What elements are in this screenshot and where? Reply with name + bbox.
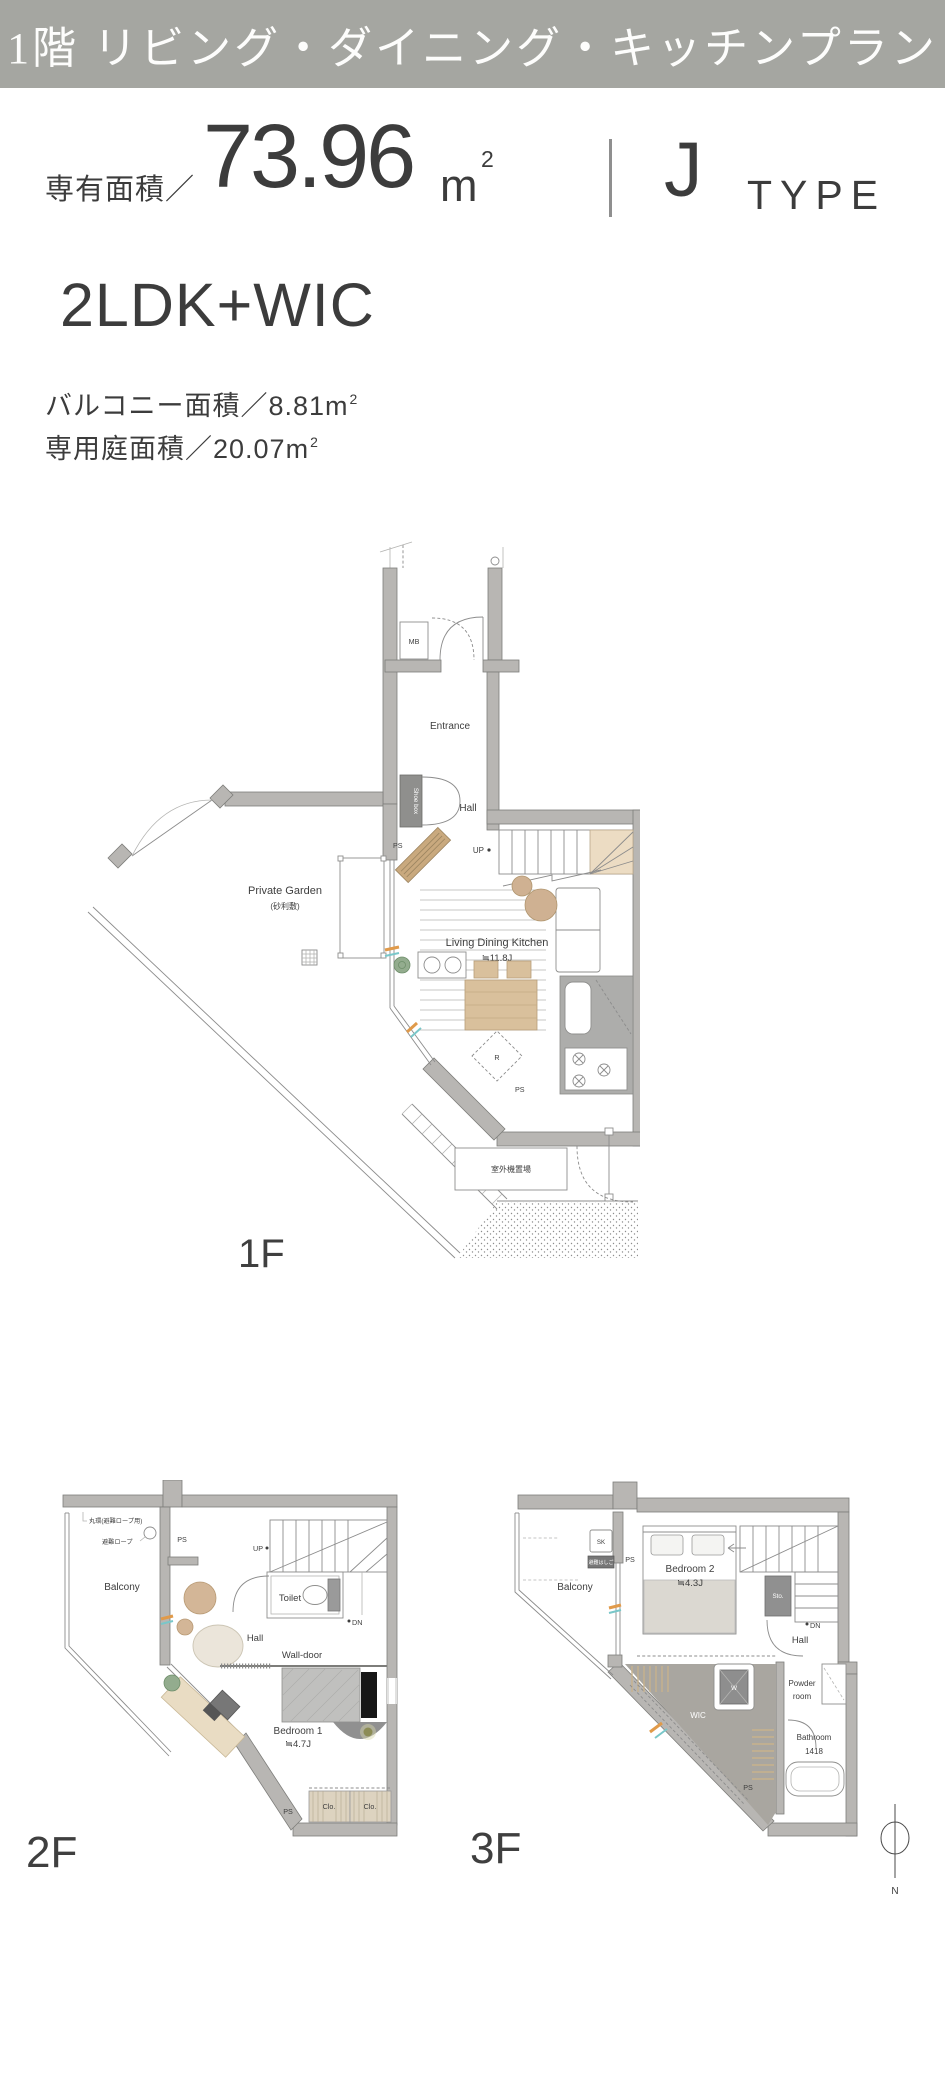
room-label-entrance: Entrance xyxy=(430,721,470,732)
room-size-bathroom: 1418 xyxy=(805,1747,823,1756)
room-label-balcony-3f: Balcony xyxy=(557,1582,593,1593)
exclusive-area-unit-sup: 2 xyxy=(481,146,494,173)
room-label-powder-1: Powder xyxy=(788,1679,815,1688)
room-size-bedroom2: ≒4.3J xyxy=(677,1578,703,1589)
ps-label-3f-upper: PS xyxy=(625,1555,635,1564)
slop-sink-label: SK xyxy=(597,1539,606,1546)
shoe-box-label: Shoe box xyxy=(412,788,419,815)
private-garden-note: (砂利敷) xyxy=(270,901,300,911)
ps-label-1f-lower: PS xyxy=(515,1085,525,1094)
room-label-powder-2: room xyxy=(793,1692,812,1701)
balcony-area-value: 8.81 xyxy=(268,391,325,421)
room-label-ldk: Living Dining Kitchen xyxy=(446,937,549,949)
compass-north-label: N xyxy=(891,1886,898,1897)
room-label-bedroom1: Bedroom 1 xyxy=(274,1726,323,1737)
mailbox-label: MB xyxy=(409,637,420,646)
balcony-area-label: バルコニー面積／ xyxy=(45,391,268,421)
floor-label-3f: 3F xyxy=(470,1824,521,1874)
ps-label-2f-upper: PS xyxy=(177,1535,187,1544)
storage-label: Sto. xyxy=(772,1593,783,1600)
stairs-up-label-2f: UP xyxy=(253,1544,263,1553)
room-label-hall-2f: Hall xyxy=(247,1633,263,1644)
room-label-toilet: Toilet xyxy=(279,1593,302,1604)
balcony-area-unit: m xyxy=(325,391,349,421)
room-label-private-garden: Private Garden xyxy=(248,885,322,897)
type-letter: J xyxy=(664,132,703,209)
washer-label: W xyxy=(731,1685,737,1692)
room-label-hall-3f: Hall xyxy=(792,1635,808,1646)
escape-ring-label: 丸環(避難ロープ用) xyxy=(89,1517,142,1525)
stairs-up-label-1f: UP xyxy=(473,846,484,855)
escape-ladder-label: 避難はしご xyxy=(588,1559,613,1566)
ps-label-2f-lower: PS xyxy=(283,1807,293,1816)
room-label-hall-1f: Hall xyxy=(459,803,476,814)
ps-label-3f-lower: PS xyxy=(743,1783,753,1792)
exclusive-area-value: 73.96 xyxy=(203,112,413,202)
outdoor-unit-label: 室外機置場 xyxy=(491,1164,531,1174)
room-layout: 2LDK+WIC xyxy=(60,270,375,340)
closet1-label: Clo. xyxy=(323,1802,336,1811)
vertical-divider xyxy=(609,139,612,217)
floorplan-sheet: { "banner": { "title": "1階 リビング・ダイニング・キッ… xyxy=(0,0,945,2100)
closet2-label: Clo. xyxy=(364,1802,377,1811)
north-compass-icon: N xyxy=(868,1796,928,1900)
exclusive-area-label: 専有面積／ xyxy=(45,166,195,208)
room-label-bedroom2: Bedroom 2 xyxy=(666,1564,715,1575)
page-title: 1階 リビング・ダイニング・キッチンプラン xyxy=(7,12,938,76)
floor-plan-2f: 丸環(避難ロープ用) 避難ロープ PS Balcony UP DN Toilet… xyxy=(40,1480,410,1860)
wall-door-label: Wall-door xyxy=(282,1650,322,1661)
stairs-dn-label-3f: DN xyxy=(810,1621,820,1630)
room-size-bedroom1: ≒4.7J xyxy=(285,1739,311,1750)
ps-label-1f-upper: PS xyxy=(393,841,403,850)
fridge-label: R xyxy=(494,1053,499,1062)
room-label-bathroom: Bathroom xyxy=(797,1733,832,1742)
header-banner: 1階 リビング・ダイニング・キッチンプラン xyxy=(0,0,945,88)
type-suffix: TYPE xyxy=(747,172,886,219)
floor-label-1f: 1F xyxy=(238,1232,285,1277)
stairs-dn-label-2f: DN xyxy=(352,1618,362,1627)
balcony-area-row: バルコニー面積／8.81m2 xyxy=(45,384,357,423)
room-label-wic: WIC xyxy=(690,1711,706,1720)
bench xyxy=(395,827,450,882)
exclusive-area-unit: m xyxy=(440,160,478,212)
balcony-area-unit-sup: 2 xyxy=(350,391,359,407)
floor-plan-3f: SK 避難はしご PS Balcony Bedroom 2 ≒4.3J DN S… xyxy=(480,1480,860,1860)
escape-rope-label: 避難ロープ xyxy=(102,1538,133,1546)
floor-label-2f: 2F xyxy=(26,1828,77,1878)
room-label-balcony-2f: Balcony xyxy=(104,1582,140,1593)
floor-plan-1f: MB Entrance Shoe box Hall PS Private Gar… xyxy=(60,420,640,1300)
